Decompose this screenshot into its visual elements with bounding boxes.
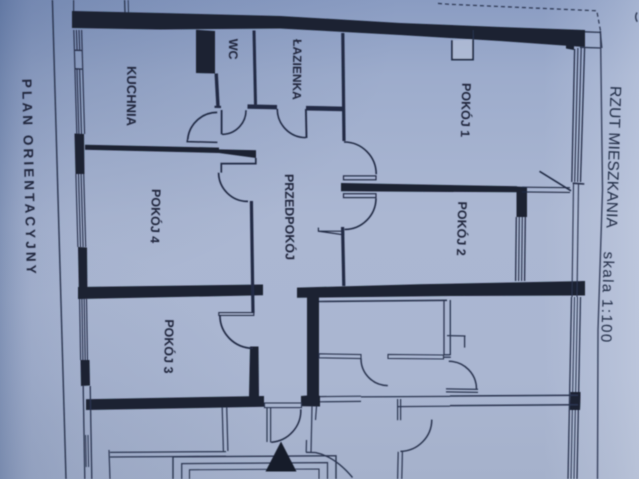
svg-text:PRZEDPOKÓJ: PRZEDPOKÓJ <box>282 174 298 260</box>
svg-text:KUCHNIA: KUCHNIA <box>124 66 140 127</box>
svg-text:POKÓJ 4: POKÓJ 4 <box>148 189 164 244</box>
svg-text:ŁAZIENKA: ŁAZIENKA <box>290 39 305 100</box>
svg-text:skala 1:100: skala 1:100 <box>597 251 617 344</box>
svg-text:POKÓJ 3: POKÓJ 3 <box>161 319 177 373</box>
svg-text:POKÓJ 2: POKÓJ 2 <box>454 201 470 256</box>
svg-text:WC: WC <box>226 39 240 60</box>
svg-text:POKÓJ 1: POKÓJ 1 <box>458 83 474 138</box>
